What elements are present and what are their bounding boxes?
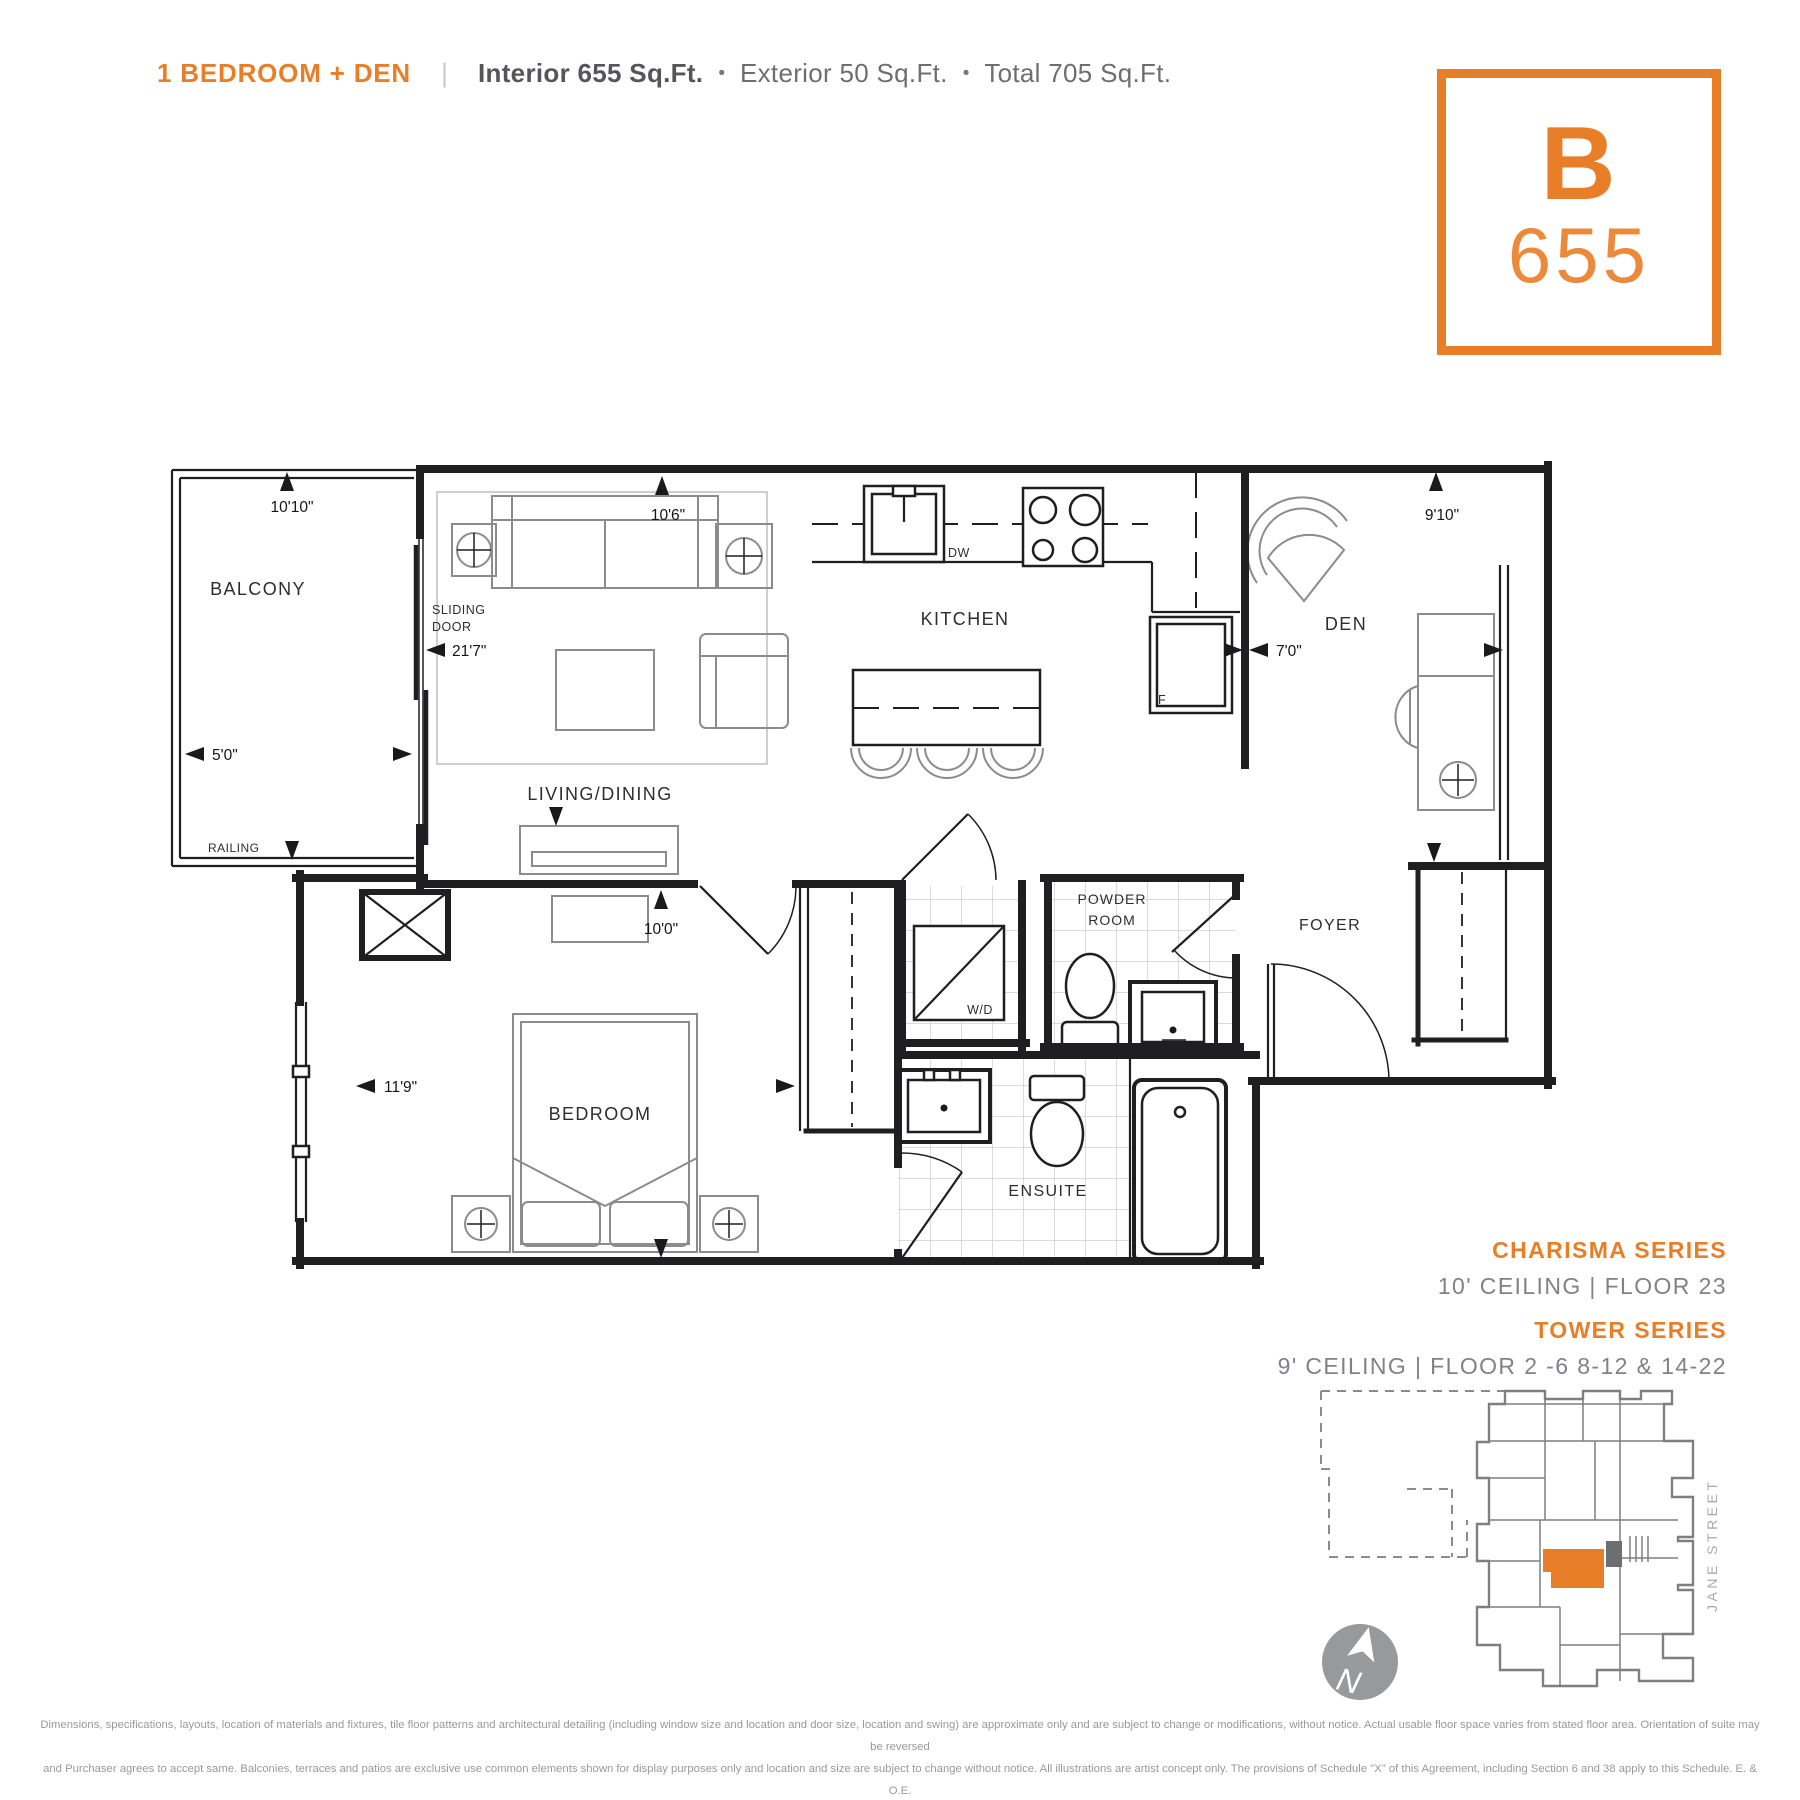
ensuite-toilet-icon	[1030, 1076, 1084, 1166]
disclaimer: Dimensions, specifications, layouts, loc…	[40, 1714, 1760, 1800]
charisma-series-detail: 10' CEILING | FLOOR 23	[1278, 1273, 1727, 1300]
dim-bedroom-length: 11'9"	[384, 1079, 417, 1096]
entry-door-icon	[1268, 964, 1389, 1082]
disclaimer-line-2: and Purchaser agrees to accept same. Bal…	[40, 1758, 1760, 1800]
dim-den-width: 7'0"	[1276, 643, 1302, 660]
dim-bedroom-width: 10'0"	[644, 921, 678, 938]
room-label-balcony: BALCONY	[210, 579, 306, 599]
room-label-bedroom: BEDROOM	[549, 1104, 652, 1124]
fridge-label: F	[1158, 693, 1166, 707]
keyplan-core	[1606, 1541, 1622, 1567]
keyplan: JANE STREET N	[1321, 1391, 1720, 1703]
laundry-door-icon	[902, 814, 996, 880]
room-label-powder-2: ROOM	[1088, 912, 1136, 928]
jane-street-label: JANE STREET	[1704, 1479, 1720, 1612]
floorplan-sheet: 1 BEDROOM + DEN | Interior 655 Sq.Ft. • …	[0, 0, 1800, 1800]
charisma-series-title: CHARISMA SERIES	[1278, 1237, 1727, 1264]
room-label-powder-1: POWDER	[1078, 891, 1147, 907]
ensuite-sink-icon	[898, 1070, 990, 1142]
bedroom-door-icon	[700, 886, 796, 954]
keyplan-building-outline	[1477, 1391, 1693, 1686]
shaft-icon	[362, 892, 448, 958]
room-label-foyer: FOYER	[1299, 917, 1361, 934]
north-indicator: N	[1322, 1623, 1398, 1704]
disclaimer-line-1: Dimensions, specifications, layouts, loc…	[40, 1714, 1760, 1758]
tower-series-detail: 9' CEILING | FLOOR 2 -6 8-12 & 14-22	[1278, 1353, 1727, 1380]
dim-living-width: 10'6"	[651, 507, 685, 524]
table-icon	[556, 650, 654, 730]
tv-console-icon	[520, 826, 678, 874]
dimension-labels: 10'10" 5'0" 21'7" 10'6" 9'10" 7'0" 10'0"…	[212, 499, 1459, 1096]
bed-icon	[513, 1014, 697, 1252]
floor-plan-svg: 10'10" 5'0" 21'7" 10'6" 9'10" 7'0" 10'0"…	[0, 0, 1800, 1800]
north-circle	[1322, 1624, 1398, 1700]
tower-series-title: TOWER SERIES	[1278, 1317, 1727, 1344]
bedroom-window-icon	[293, 1002, 309, 1222]
series-info: CHARISMA SERIES 10' CEILING | FLOOR 23 T…	[1278, 1237, 1727, 1380]
sliding-door-label-1: SLIDING	[432, 603, 486, 617]
washer-dryer-label: W/D	[967, 1003, 993, 1017]
dresser-icon	[552, 896, 648, 942]
den-chair-icon	[1247, 497, 1347, 601]
bathtub-icon	[1130, 1059, 1226, 1262]
room-label-den: DEN	[1325, 614, 1367, 634]
stove-icon	[1023, 488, 1103, 566]
railing-label: RAILING	[208, 841, 260, 855]
den-desk-icon	[1395, 614, 1494, 810]
kitchen-fixtures	[812, 472, 1240, 745]
room-label-living: LIVING/DINING	[527, 784, 672, 804]
room-label-kitchen: KITCHEN	[921, 609, 1010, 629]
keyplan-highlight-unit	[1543, 1549, 1604, 1588]
island-stool-icons	[851, 748, 1043, 778]
sliding-door-label-2: DOOR	[432, 620, 472, 634]
powder-sink-icon	[1130, 982, 1216, 1052]
powder-toilet-icon	[1062, 954, 1118, 1048]
sofa-icon	[452, 496, 772, 588]
den-window-icon	[1500, 565, 1508, 860]
kitchen-island	[853, 670, 1040, 745]
dim-balcony-depth: 5'0"	[212, 747, 238, 764]
armchair-icon	[700, 634, 788, 728]
dishwasher-label: DW	[948, 546, 970, 560]
dim-den-length: 9'10"	[1425, 507, 1459, 524]
sliding-door-icon	[416, 535, 426, 845]
room-label-ensuite: ENSUITE	[1008, 1183, 1087, 1200]
counter-edge	[812, 562, 1240, 612]
dim-balcony-length: 10'10"	[271, 499, 314, 516]
kitchen-sink-icon	[864, 486, 944, 562]
dim-living-length: 21'7"	[452, 643, 486, 660]
balcony-railing	[172, 470, 420, 866]
